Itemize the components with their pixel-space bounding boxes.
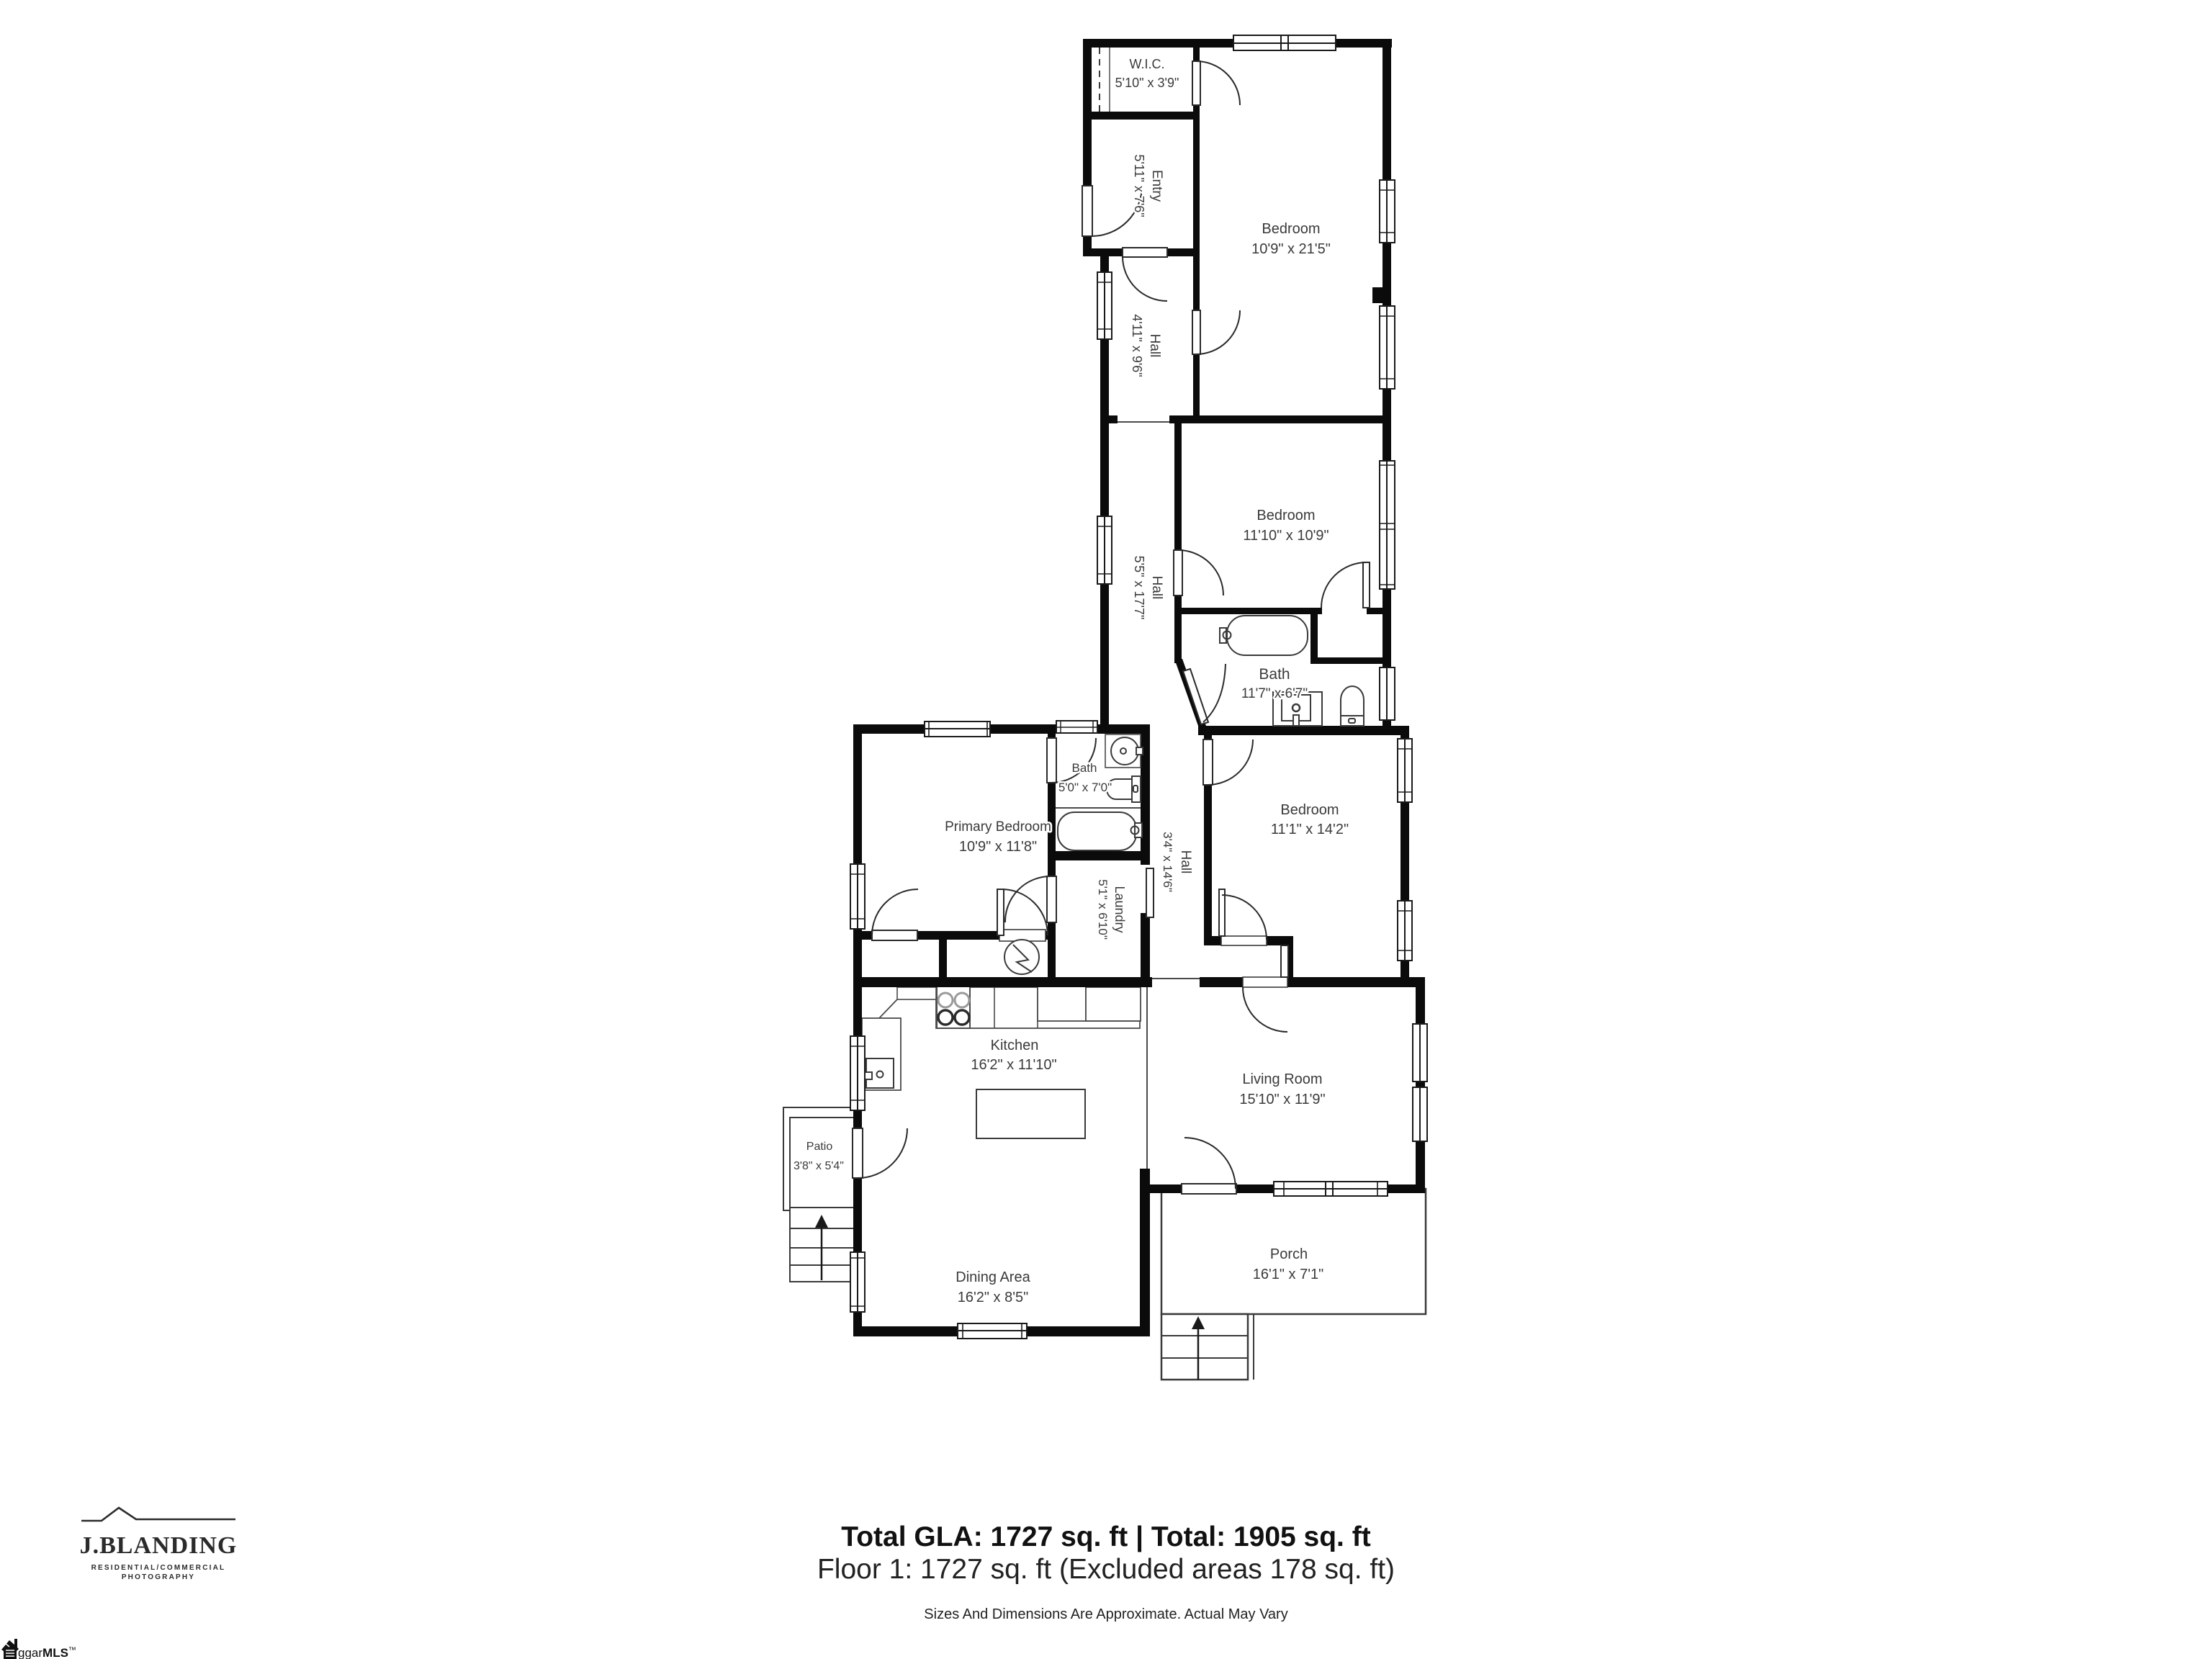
svg-text:3'8" x 5'4": 3'8" x 5'4": [793, 1160, 844, 1172]
svg-text:11'10" x 10'9": 11'10" x 10'9": [1243, 528, 1328, 544]
svg-text:Bath: Bath: [1259, 666, 1290, 683]
svg-text:J.BLANDING: J.BLANDING: [80, 1532, 238, 1559]
svg-text:Bath: Bath: [1072, 761, 1097, 775]
svg-text:Hall: Hall: [1178, 850, 1193, 874]
svg-text:Entry: Entry: [1149, 170, 1164, 202]
svg-text:5'0" x 7'0": 5'0" x 7'0": [1058, 781, 1112, 794]
svg-text:4'11" x 9'6": 4'11" x 9'6": [1130, 314, 1144, 377]
svg-text:5'5" x 17'7": 5'5" x 17'7": [1132, 556, 1146, 620]
svg-text:RESIDENTIAL/COMMERCIAL: RESIDENTIAL/COMMERCIAL: [91, 1564, 226, 1572]
svg-text:5'11" x 7'6": 5'11" x 7'6": [1132, 154, 1146, 217]
svg-text:16'2" x 8'5": 16'2" x 8'5": [958, 1290, 1029, 1305]
svg-text:Dining Area: Dining Area: [956, 1269, 1030, 1285]
svg-text:Primary Bedroom: Primary Bedroom: [945, 819, 1051, 835]
svg-text:W.I.C.: W.I.C.: [1130, 57, 1165, 71]
svg-text:5'1" x 6'10": 5'1" x 6'10": [1096, 879, 1110, 940]
svg-text:16'2" x 11'10": 16'2" x 11'10": [971, 1057, 1056, 1073]
svg-text:Floor 1: 1727 sq. ft (Excluded: Floor 1: 1727 sq. ft (Excluded areas 178…: [817, 1554, 1395, 1585]
svg-text:5'10" x 3'9": 5'10" x 3'9": [1115, 76, 1179, 90]
svg-text:Hall: Hall: [1149, 576, 1164, 600]
svg-text:ggarMLS™: ggarMLS™: [18, 1646, 76, 1659]
svg-text:Bedroom: Bedroom: [1280, 802, 1339, 818]
svg-text:Total GLA: 1727 sq. ft | Total: Total GLA: 1727 sq. ft | Total: 1905 sq.…: [841, 1521, 1370, 1552]
svg-text:16'1" x 7'1": 16'1" x 7'1": [1253, 1267, 1324, 1282]
svg-text:PHOTOGRAPHY: PHOTOGRAPHY: [122, 1573, 195, 1581]
svg-text:Patio: Patio: [806, 1141, 833, 1153]
svg-text:Bedroom: Bedroom: [1262, 221, 1320, 237]
svg-text:Sizes And Dimensions Are Appro: Sizes And Dimensions Are Approximate. Ac…: [924, 1606, 1287, 1622]
svg-text:Hall: Hall: [1147, 334, 1162, 358]
svg-text:11'7" x 6'7": 11'7" x 6'7": [1241, 686, 1308, 701]
svg-text:10'9" x 11'8": 10'9" x 11'8": [959, 839, 1037, 855]
svg-text:10'9" x 21'5": 10'9" x 21'5": [1251, 241, 1331, 257]
svg-text:Living Room: Living Room: [1242, 1071, 1322, 1087]
svg-text:15'10" x 11'9": 15'10" x 11'9": [1239, 1092, 1325, 1107]
svg-text:11'1" x 14'2": 11'1" x 14'2": [1271, 822, 1349, 837]
svg-text:3'4" x 14'6": 3'4" x 14'6": [1161, 832, 1174, 892]
svg-text:Bedroom: Bedroom: [1256, 508, 1315, 523]
svg-text:Laundry: Laundry: [1112, 886, 1127, 932]
svg-text:Kitchen: Kitchen: [991, 1038, 1039, 1053]
svg-text:Porch: Porch: [1270, 1246, 1308, 1262]
